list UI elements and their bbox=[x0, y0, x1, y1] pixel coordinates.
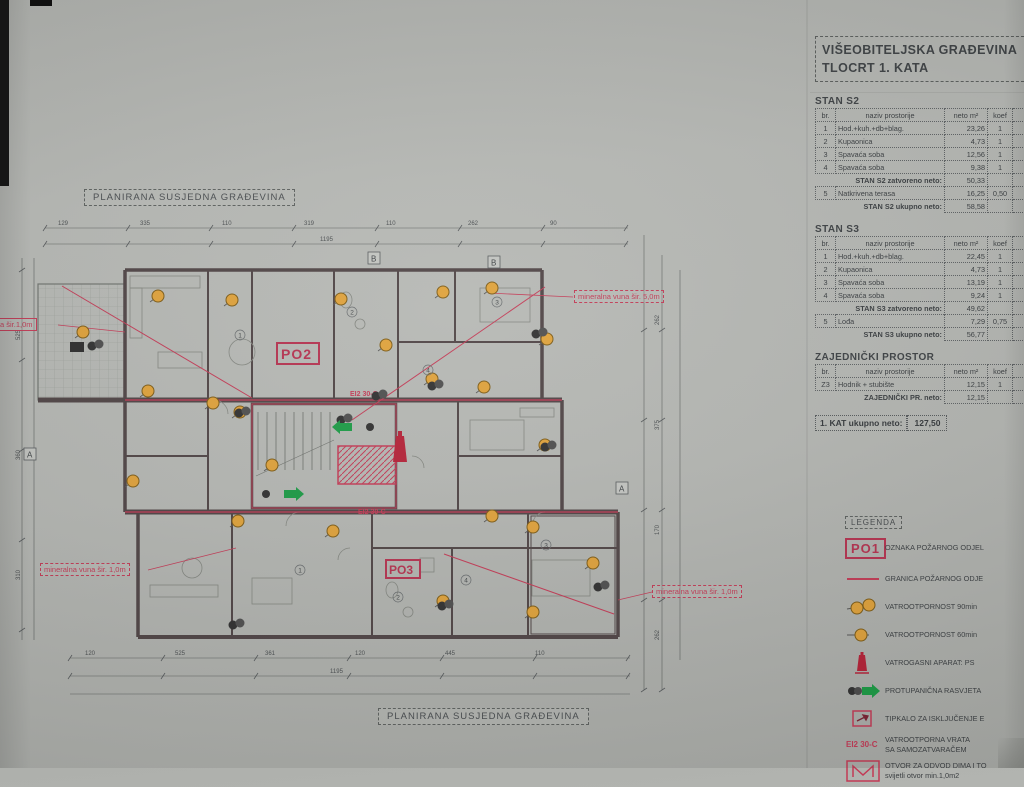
legend-icon-cell bbox=[845, 595, 885, 619]
table-cell bbox=[1013, 391, 1024, 404]
panic-light-symbol bbox=[262, 487, 304, 501]
fire-rating-90-symbol bbox=[484, 282, 498, 294]
table-cell: 2 bbox=[816, 263, 836, 276]
legend-label: TIPKALO ZA ISKLJUČENJE E bbox=[885, 714, 984, 724]
table-sum-row: STAN S2 ukupno neto:58,58 bbox=[816, 200, 1024, 213]
table-cell: 1 bbox=[816, 250, 836, 263]
mineral-wool-note-right-top: mineralna vuna šir. 5,0m bbox=[574, 290, 664, 303]
table-cell: koef bbox=[988, 365, 1013, 378]
table-cell bbox=[1013, 148, 1024, 161]
table-cell: 2 bbox=[816, 135, 836, 148]
table-cell: Hod.+kuh.+db+blag. bbox=[836, 250, 945, 263]
table-cell: 9,38 bbox=[945, 161, 988, 174]
table-stan-s2: STAN S2br.naziv prostorijeneto m²koefnet… bbox=[815, 96, 1024, 213]
table-cell: Spavaća soba bbox=[836, 148, 945, 161]
zone-po2-label: PO2 bbox=[281, 346, 312, 362]
table-row: 4Spavaća soba9,241 bbox=[816, 289, 1024, 302]
table-cell: 12,15 bbox=[945, 378, 988, 391]
legend-label: OZNAKA POŽARNOG ODJEL bbox=[885, 543, 984, 553]
table-cell: 9,24 bbox=[945, 289, 988, 302]
fire-rating-90-symbol bbox=[333, 293, 347, 305]
table-cell: Kupaonica bbox=[836, 263, 945, 276]
table-cell: naziv prostorije bbox=[836, 237, 945, 250]
table-cell: Hod.+kuh.+db+blag. bbox=[836, 122, 945, 135]
building-title: VIŠEOBITELJSKA GRAĐEVINA bbox=[822, 41, 1022, 59]
dimension-value: 262 bbox=[655, 629, 661, 640]
legend-label: VATROOTPORNA VRATASA SAMOZATVARAČEM bbox=[885, 735, 970, 755]
table-row: 3Spavaća soba13,191 bbox=[816, 276, 1024, 289]
table-cell bbox=[988, 174, 1013, 187]
table-cell bbox=[988, 391, 1013, 404]
axis-marker: A bbox=[616, 482, 628, 494]
table-row: Z3Hodnik + stubište12,151 bbox=[816, 378, 1024, 391]
legend-icon-cell bbox=[845, 651, 885, 675]
po1-box-icon: PO1 bbox=[845, 538, 886, 559]
table-cell bbox=[1013, 187, 1024, 200]
legend-item: VATROOTPORNOST 60min bbox=[845, 623, 1024, 647]
floor-total-row: 1. KAT ukupno neto: 127,50 bbox=[815, 415, 1024, 431]
fire-rating-90-symbol bbox=[140, 385, 154, 397]
table-cell bbox=[988, 328, 1013, 341]
legend-label: GRANICA POŽARNOG ODJE bbox=[885, 574, 983, 584]
legend-icon-cell: PO1 bbox=[845, 538, 885, 559]
table-title: STAN S3 bbox=[815, 224, 1024, 235]
table-cell: 1 bbox=[988, 263, 1013, 276]
boundary-line-icon bbox=[845, 567, 883, 591]
dimension-value: 445 bbox=[445, 651, 456, 657]
table-cell: 56,77 bbox=[945, 328, 988, 341]
table-cell: 58,58 bbox=[945, 200, 988, 213]
svg-text:4: 4 bbox=[464, 577, 468, 584]
table-cell: 13,19 bbox=[945, 276, 988, 289]
table-cell bbox=[1013, 276, 1024, 289]
table-cell: naziv prostorije bbox=[836, 109, 945, 122]
table-cell: 0,75 bbox=[988, 315, 1013, 328]
dimension-value: 90 bbox=[550, 221, 557, 227]
drawing-name: TLOCRT 1. KATA bbox=[822, 59, 1022, 77]
table-cell: Z3 bbox=[816, 378, 836, 391]
table-cell bbox=[1013, 315, 1024, 328]
table-cell: 4,73 bbox=[945, 135, 988, 148]
table-cell bbox=[1013, 250, 1024, 263]
table-cell: 1 bbox=[988, 378, 1013, 391]
dimension-value: 319 bbox=[304, 221, 315, 227]
table-cell: ZAJEDNIČKI PR. neto: bbox=[816, 391, 945, 404]
legend-item: VATROOTPORNOST 90min bbox=[845, 595, 1024, 619]
table-cell: STAN S2 ukupno neto: bbox=[816, 200, 945, 213]
table-cell bbox=[1013, 302, 1024, 315]
table-cell: Spavaća soba bbox=[836, 276, 945, 289]
table-cell: neto m² bbox=[945, 365, 988, 378]
table-row: 3Spavaća soba12,561 bbox=[816, 148, 1024, 161]
legend-item: GRANICA POŽARNOG ODJE bbox=[845, 567, 1024, 591]
svg-text:3: 3 bbox=[495, 299, 499, 306]
table-cell bbox=[1013, 378, 1024, 391]
legend-icon-cell: EI2 30-C bbox=[845, 739, 885, 750]
table-cell: Hodnik + stubište bbox=[836, 378, 945, 391]
table-title: STAN S2 bbox=[815, 96, 1024, 107]
fire-rating-90-symbol bbox=[325, 525, 339, 537]
dimension-value: 110 bbox=[535, 651, 545, 657]
table-cell bbox=[988, 302, 1013, 315]
table-cell: 5 bbox=[816, 315, 836, 328]
room-number: 3 bbox=[541, 540, 551, 550]
walls bbox=[38, 270, 618, 637]
dimension-value: 129 bbox=[58, 221, 69, 227]
legend-item: TIPKALO ZA ISKLJUČENJE E bbox=[845, 707, 1024, 731]
kill-switch-icon bbox=[845, 707, 883, 731]
table-sum-row: STAN S3 zatvoreno neto:49,62 bbox=[816, 302, 1024, 315]
table-cell: 0,50 bbox=[988, 187, 1013, 200]
svg-text:A: A bbox=[27, 451, 33, 460]
table-title: ZAJEDNIČKI PROSTOR bbox=[815, 352, 1024, 363]
svg-text:2: 2 bbox=[396, 594, 400, 601]
fire-rating-90-symbol bbox=[378, 339, 392, 351]
table-cell: 12,56 bbox=[945, 148, 988, 161]
legend-icon-cell bbox=[845, 759, 885, 783]
legend-icon-cell bbox=[845, 623, 885, 647]
table-cell: 7,29 bbox=[945, 315, 988, 328]
table-cell: Lođa bbox=[836, 315, 945, 328]
table-cell: koef bbox=[988, 109, 1013, 122]
table-cell: br. bbox=[816, 109, 836, 122]
legend-label: VATROOTPORNOST 90min bbox=[885, 602, 977, 612]
table-cell: 12,15 bbox=[945, 391, 988, 404]
legend-item: PROTUPANIČNA RASVJETA bbox=[845, 679, 1024, 703]
dimension-value: 262 bbox=[468, 221, 479, 227]
table-cell: koef bbox=[988, 237, 1013, 250]
drawing-title-block: VIŠEOBITELJSKA GRAĐEVINA TLOCRT 1. KATA bbox=[815, 36, 1024, 82]
table-cell: 1 bbox=[988, 289, 1013, 302]
table-cell: 1 bbox=[988, 161, 1013, 174]
neighbor-building-label-top: PLANIRANA SUSJEDNA GRAĐEVINA bbox=[84, 189, 295, 206]
floor-plan-drawing: PO2 PO3 EI2 30-C EI2 30-C BBAA 12341234 … bbox=[0, 0, 810, 768]
floor-total-value: 127,50 bbox=[907, 415, 947, 431]
dimension-value: 335 bbox=[140, 221, 151, 227]
paper-crease-vertical bbox=[806, 0, 808, 768]
table-cell: neto m² bbox=[945, 237, 988, 250]
axis-marker: B bbox=[368, 252, 380, 264]
svg-text:B: B bbox=[371, 255, 376, 264]
dimension-value: 1195 bbox=[320, 237, 334, 243]
table-cell: 1 bbox=[988, 122, 1013, 135]
svg-text:1: 1 bbox=[298, 567, 302, 574]
photo-corner-shadow bbox=[998, 738, 1024, 768]
axis-marker: A bbox=[24, 448, 36, 460]
table-cell: neto bbox=[1013, 109, 1024, 122]
fire-rating-90-symbol bbox=[435, 286, 449, 298]
table-cell: 1 bbox=[988, 250, 1013, 263]
table-cell: neto m² bbox=[945, 109, 988, 122]
legend-icon-cell bbox=[845, 679, 885, 703]
svg-text:B: B bbox=[491, 259, 496, 268]
table-cell: 1 bbox=[816, 122, 836, 135]
table-cell: STAN S2 zatvoreno neto: bbox=[816, 174, 945, 187]
extinguisher-icon bbox=[845, 651, 883, 675]
table-cell bbox=[1013, 328, 1024, 341]
table-cell bbox=[1013, 200, 1024, 213]
table-cell: Natkrivena terasa bbox=[836, 187, 945, 200]
room-number: 1 bbox=[235, 330, 245, 340]
zone-po3-label: PO3 bbox=[389, 563, 413, 577]
photographed-floor-plan: PO2 PO3 EI2 30-C EI2 30-C BBAA 12341234 … bbox=[0, 0, 1024, 768]
table-row: 5Lođa7,290,75 bbox=[816, 315, 1024, 328]
fire-rating-90-symbol bbox=[224, 294, 238, 306]
axis-marker: B bbox=[488, 256, 500, 268]
mineral-wool-note-left: mineralna vuna šir. 1,0m bbox=[40, 563, 130, 576]
fire-rating-60-symbol bbox=[594, 581, 610, 592]
table-cell: 1 bbox=[988, 148, 1013, 161]
dimension-value: 170 bbox=[655, 524, 661, 535]
table-row: 1Hod.+kuh.+db+blag.22,451 bbox=[816, 250, 1024, 263]
room-number: 2 bbox=[347, 307, 357, 317]
legend-icon-cell bbox=[845, 707, 885, 731]
svg-text:2: 2 bbox=[350, 309, 354, 316]
table-cell: br. bbox=[816, 365, 836, 378]
table-cell: 5 bbox=[816, 187, 836, 200]
table-cell bbox=[1013, 289, 1024, 302]
table-sum-row: STAN S3 ukupno neto:56,77 bbox=[816, 328, 1024, 341]
table-cell bbox=[1013, 174, 1024, 187]
fire-rating-60-icon bbox=[845, 623, 883, 647]
table-cell: 4 bbox=[816, 161, 836, 174]
dimension-value: 262 bbox=[655, 314, 661, 325]
mineral-wool-note-right-bottom: mineralna vuna šir. 1,0m bbox=[652, 585, 742, 598]
table-cell: naziv prostorije bbox=[836, 365, 945, 378]
legend-title: LEGENDA bbox=[845, 516, 902, 529]
legend-label: OTVOR ZA ODVOD DIMA I TOsvijetli otvor m… bbox=[885, 761, 987, 781]
table-stan-s3: STAN S3br.naziv prostorijeneto m²koefnet… bbox=[815, 224, 1024, 341]
legend-label: VATROOTPORNOST 60min bbox=[885, 630, 977, 640]
panic-light-symbol bbox=[332, 420, 374, 434]
title-and-tables-panel: VIŠEOBITELJSKA GRAĐEVINA TLOCRT 1. KATA … bbox=[815, 36, 1024, 431]
table-cell: 1 bbox=[988, 135, 1013, 148]
fire-rating-90-symbol bbox=[264, 459, 278, 471]
table-cell: STAN S3 zatvoreno neto: bbox=[816, 302, 945, 315]
dimension-value: 120 bbox=[85, 651, 96, 657]
fire-door-icon: EI2 30-C bbox=[845, 739, 879, 750]
dimension-value: 361 bbox=[265, 651, 276, 657]
table-cell: neto bbox=[1013, 237, 1024, 250]
table-row: 2Kupaonica4,731 bbox=[816, 135, 1024, 148]
neighbor-building-label-bottom: PLANIRANA SUSJEDNA GRAĐEVINA bbox=[378, 708, 589, 725]
fire-rating-90-symbol bbox=[585, 557, 599, 569]
legend-label: PROTUPANIČNA RASVJETA bbox=[885, 686, 981, 696]
svg-text:1: 1 bbox=[238, 332, 242, 339]
table-cell: 1 bbox=[988, 276, 1013, 289]
table-cell: Kupaonica bbox=[836, 135, 945, 148]
table-cell bbox=[1013, 135, 1024, 148]
table-sum-row: ZAJEDNIČKI PR. neto:12,15 bbox=[816, 391, 1024, 404]
dimension-value: 110 bbox=[386, 221, 396, 227]
dimension-value: 525 bbox=[175, 651, 186, 657]
table-cell bbox=[1013, 122, 1024, 135]
room-number: 4 bbox=[461, 575, 471, 585]
floor-total-label: 1. KAT ukupno neto: bbox=[815, 415, 907, 431]
fire-rating-90-symbol bbox=[476, 381, 490, 393]
table-row: 2Kupaonica4,731 bbox=[816, 263, 1024, 276]
photo-edge-shadow-left bbox=[0, 0, 9, 186]
smoke-vent-icon bbox=[845, 759, 883, 783]
table-cell: 49,62 bbox=[945, 302, 988, 315]
fire-rating-90-symbol bbox=[125, 475, 139, 487]
legend-item: VATROGASNI APARAT: PS bbox=[845, 651, 1024, 675]
table-cell bbox=[1013, 161, 1024, 174]
legend-icon-cell bbox=[845, 567, 885, 591]
dimension-value: 375 bbox=[655, 419, 661, 430]
table-row: 5Natkrivena terasa16,250,50 bbox=[816, 187, 1024, 200]
table-row: 4Spavaća soba9,381 bbox=[816, 161, 1024, 174]
legend-label: VATROGASNI APARAT: PS bbox=[885, 658, 974, 668]
svg-text:A: A bbox=[619, 485, 625, 494]
panic-light-icon bbox=[845, 679, 883, 703]
fire-rating-90-symbol bbox=[150, 290, 164, 302]
table-cell bbox=[1013, 263, 1024, 276]
room-number: 1 bbox=[295, 565, 305, 575]
table-cell: Spavaća soba bbox=[836, 289, 945, 302]
mineral-wool-note-left-edge: a šir.1,0m bbox=[0, 318, 37, 331]
paper-crease-horizontal bbox=[810, 92, 1024, 93]
room-number: 3 bbox=[492, 297, 502, 307]
table-cell: 3 bbox=[816, 276, 836, 289]
table-cell: STAN S3 ukupno neto: bbox=[816, 328, 945, 341]
table-cell: 4 bbox=[816, 289, 836, 302]
table-row: 1Hod.+kuh.+db+blag.23,261 bbox=[816, 122, 1024, 135]
dimension-value: 1195 bbox=[330, 669, 344, 675]
table-cell: 16,25 bbox=[945, 187, 988, 200]
dimension-value: 310 bbox=[16, 569, 22, 580]
dimension-value: 120 bbox=[355, 651, 366, 657]
table-cell: neto bbox=[1013, 365, 1024, 378]
table-cell: br. bbox=[816, 237, 836, 250]
table-cell: 3 bbox=[816, 148, 836, 161]
table-cell: 22,45 bbox=[945, 250, 988, 263]
table-cell: 4,73 bbox=[945, 263, 988, 276]
dimension-value: 360 bbox=[16, 449, 22, 460]
table-cell bbox=[988, 200, 1013, 213]
photo-edge-shadow-top bbox=[30, 0, 52, 6]
fire-rating-60-symbol bbox=[229, 619, 245, 630]
legend-item: PO1OZNAKA POŽARNOG ODJEL bbox=[845, 533, 1024, 563]
table-sum-row: STAN S2 zatvoreno neto:50,33 bbox=[816, 174, 1024, 187]
table-cell: 50,33 bbox=[945, 174, 988, 187]
table-cell: Spavaća soba bbox=[836, 161, 945, 174]
door-tag-2: EI2 30-C bbox=[358, 509, 386, 516]
table-cell: 23,26 bbox=[945, 122, 988, 135]
fire-rating-90-icon bbox=[845, 595, 883, 619]
svg-text:4: 4 bbox=[426, 367, 430, 374]
fire-protected-shaft-marker bbox=[338, 446, 396, 484]
dimension-value: 110 bbox=[222, 221, 232, 227]
table-common-area: ZAJEDNIČKI PROSTORbr.naziv prostorijenet… bbox=[815, 352, 1024, 404]
svg-text:3: 3 bbox=[544, 542, 548, 549]
